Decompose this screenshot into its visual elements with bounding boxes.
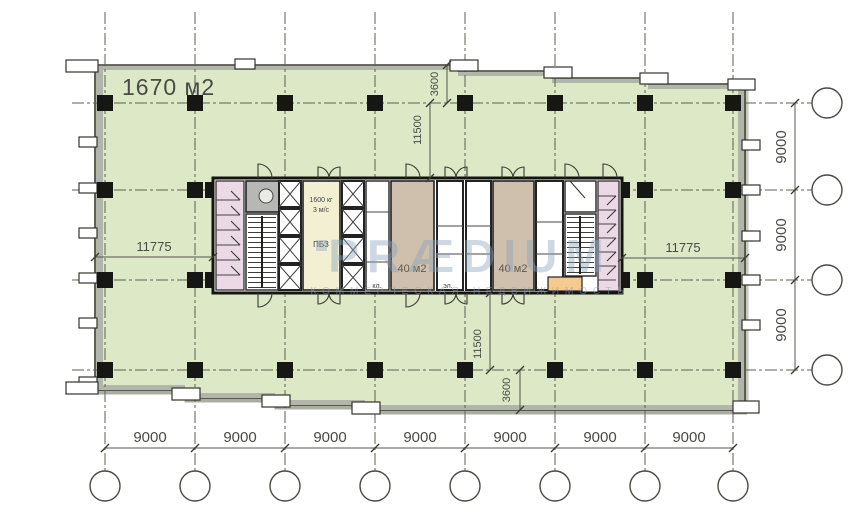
- watermark-logo: [316, 240, 327, 251]
- grid-bubble: [812, 265, 842, 295]
- watermark-line2: КОММЕРЧЕСКАЯ НЕДВИЖИМОСТЬ: [310, 285, 629, 297]
- right-dim-2: 9000: [773, 218, 790, 251]
- watermark-line1: PRÆDIUM: [328, 230, 611, 282]
- grid-bubble: [180, 471, 210, 501]
- grid-bubble: [812, 355, 842, 385]
- bottom-dimension-string: 9000 9000 9000 9000 9000 9000 9000: [90, 429, 748, 501]
- bottom-dim-6: 9000: [583, 429, 616, 446]
- bottom-core-dim: 11500: [472, 329, 484, 359]
- grid-bubble: [812, 88, 842, 118]
- grid-bubble: [450, 471, 480, 501]
- watermark: PRÆDIUM КОММЕРЧЕСКАЯ НЕДВИЖИМОСТЬ: [310, 230, 629, 297]
- right-dim-1: 9000: [773, 130, 790, 163]
- bottom-dim-2: 9000: [223, 429, 256, 446]
- bottom-offset-dim: 3600: [501, 378, 513, 402]
- right-wing-dim: 11775: [665, 240, 700, 255]
- top-offset-dim: 3600: [429, 72, 441, 96]
- floor-plan-canvas: 1670 м2 1600 кг 3 м/с ПБЗ: [0, 0, 860, 516]
- left-wing-dim: 11775: [136, 239, 171, 254]
- floor-plan-drawing: 1670 м2 1600 кг 3 м/с ПБЗ: [0, 0, 860, 516]
- top-core-dim: 11500: [412, 115, 424, 145]
- lift-capacity-label: 1600 кг: [309, 197, 333, 204]
- grid-bubble: [718, 471, 748, 501]
- grid-bubble: [360, 471, 390, 501]
- bottom-dim-3: 9000: [313, 429, 346, 446]
- bottom-dim-5: 9000: [493, 429, 526, 446]
- grid-bubble: [812, 175, 842, 205]
- right-dimension-string: 9000 9000 9000: [773, 88, 842, 385]
- stair-left: [246, 214, 278, 290]
- area-label: 1670 м2: [122, 74, 215, 100]
- wc-room-left: [216, 181, 244, 290]
- bottom-dim-1: 9000: [133, 429, 166, 446]
- lift-speed-label: 3 м/с: [313, 207, 330, 214]
- grid-bubble: [540, 471, 570, 501]
- bottom-dim-4: 9000: [403, 429, 436, 446]
- wc-fixture: [259, 189, 273, 203]
- elevator-bank-left: [279, 181, 301, 290]
- bottom-dim-7: 9000: [672, 429, 705, 446]
- right-dim-3: 9000: [773, 308, 790, 341]
- grid-bubble: [270, 471, 300, 501]
- grid-bubble: [90, 471, 120, 501]
- grid-bubble: [630, 471, 660, 501]
